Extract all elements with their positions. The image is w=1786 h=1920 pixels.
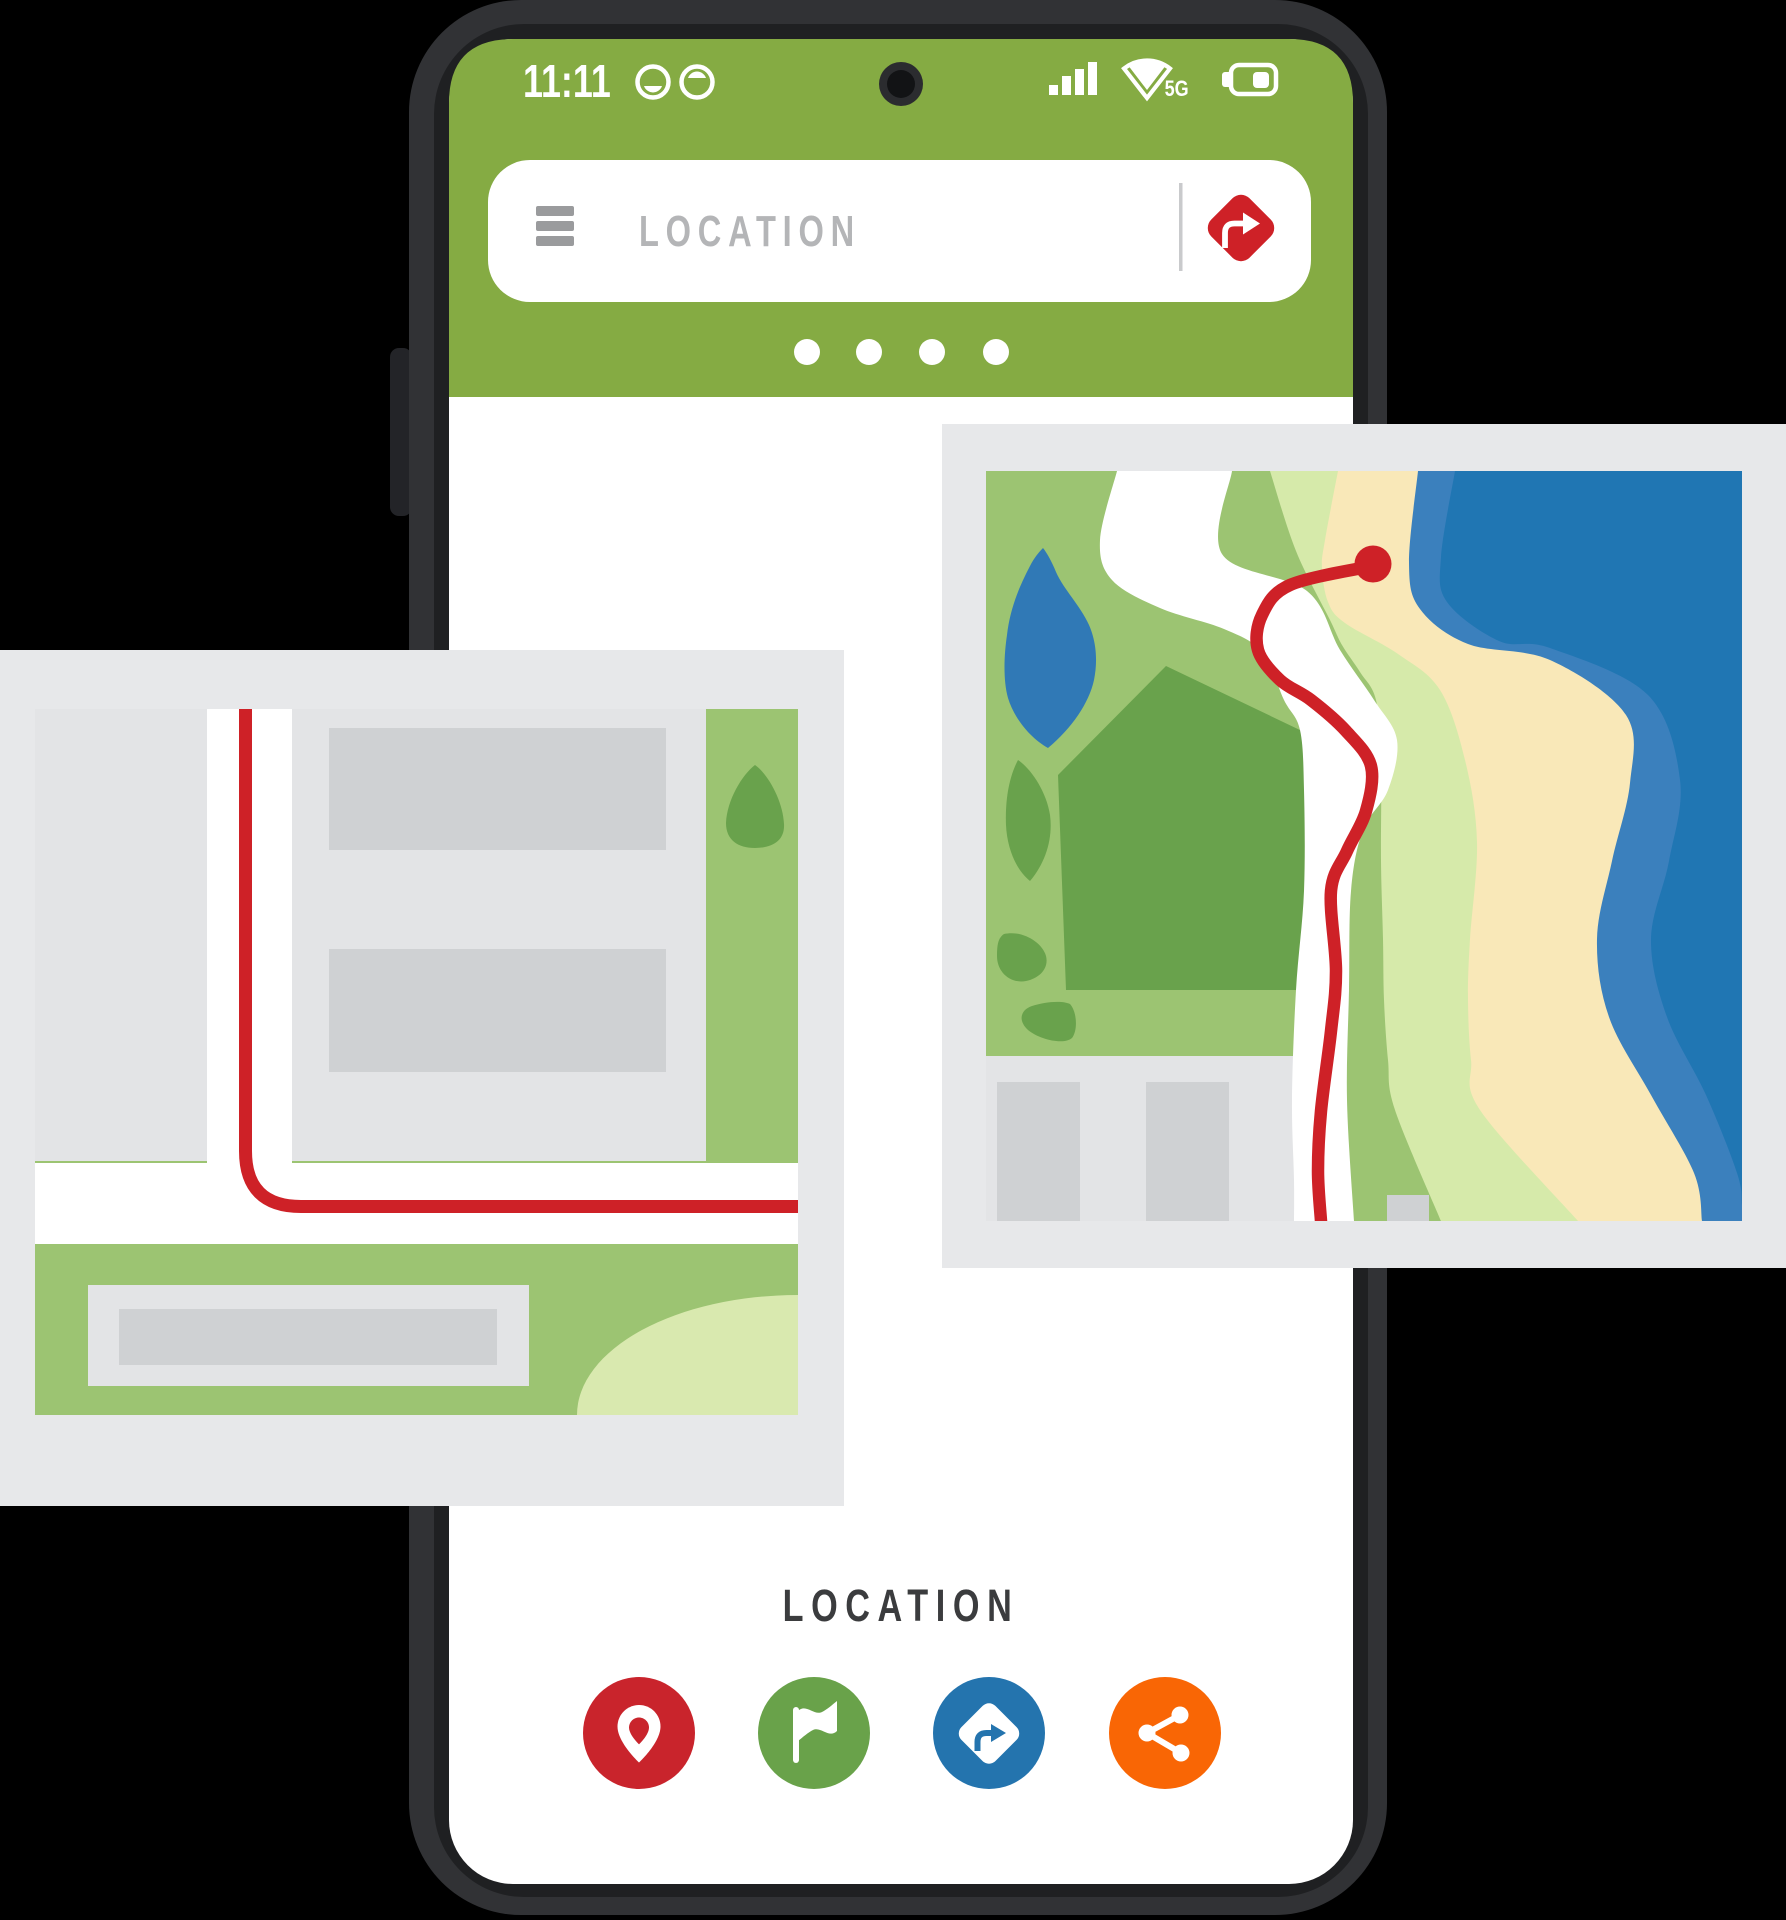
- svg-text:LOCATION: LOCATION: [639, 208, 861, 257]
- svg-text:5G: 5G: [1165, 77, 1189, 101]
- svg-text:LOCATION: LOCATION: [783, 1582, 1020, 1632]
- svg-text:11:11: 11:11: [523, 56, 611, 107]
